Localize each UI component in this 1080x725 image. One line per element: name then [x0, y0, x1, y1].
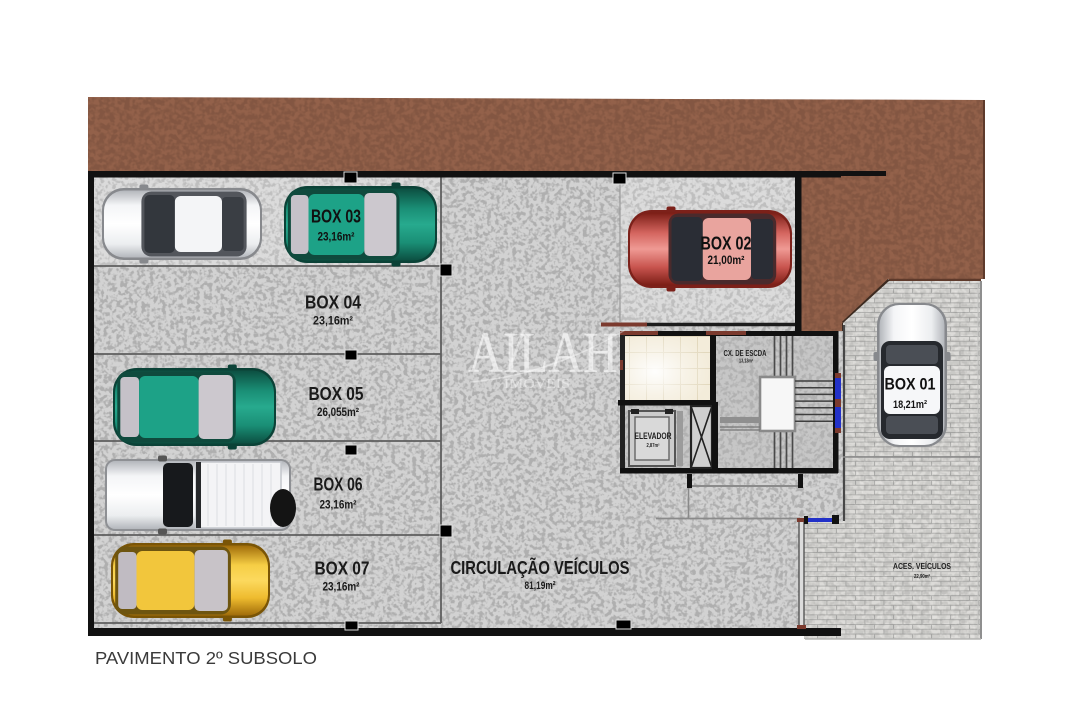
- svg-text:13,13m²: 13,13m²: [739, 359, 753, 365]
- svg-text:IMÓVEIS: IMÓVEIS: [504, 375, 570, 392]
- svg-text:21,00m²: 21,00m²: [708, 253, 745, 267]
- svg-text:AILAH: AILAH: [468, 320, 618, 385]
- svg-text:BOX 02: BOX 02: [701, 234, 752, 254]
- svg-text:22,90m²: 22,90m²: [914, 573, 930, 580]
- svg-text:BOX 01: BOX 01: [885, 375, 936, 394]
- svg-text:23,16m²: 23,16m²: [313, 314, 353, 328]
- svg-text:26,055m²: 26,055m²: [317, 405, 359, 419]
- svg-text:BOX 05: BOX 05: [309, 384, 364, 404]
- svg-text:PAVIMENTO 2º SUBSOLO: PAVIMENTO 2º SUBSOLO: [95, 648, 317, 668]
- svg-text:23,16m²: 23,16m²: [320, 498, 357, 512]
- svg-text:ACES. VEÍCULOS: ACES. VEÍCULOS: [893, 561, 951, 571]
- svg-text:23,16m²: 23,16m²: [318, 230, 355, 244]
- svg-text:ELEVADOR: ELEVADOR: [635, 431, 672, 442]
- svg-text:BOX 06: BOX 06: [314, 475, 363, 495]
- svg-text:23,16m²: 23,16m²: [323, 580, 360, 594]
- svg-text:CIRCULAÇÃO VEÍCULOS: CIRCULAÇÃO VEÍCULOS: [451, 557, 630, 578]
- svg-text:2,87m²: 2,87m²: [647, 443, 660, 449]
- svg-text:81,19m²: 81,19m²: [525, 580, 556, 592]
- svg-text:BOX 07: BOX 07: [315, 559, 370, 579]
- svg-text:18,21m²: 18,21m²: [893, 399, 927, 411]
- svg-text:BOX 04: BOX 04: [305, 293, 361, 313]
- svg-text:CX. DE ESCDA: CX. DE ESCDA: [724, 348, 767, 358]
- svg-text:BOX 03: BOX 03: [311, 207, 361, 227]
